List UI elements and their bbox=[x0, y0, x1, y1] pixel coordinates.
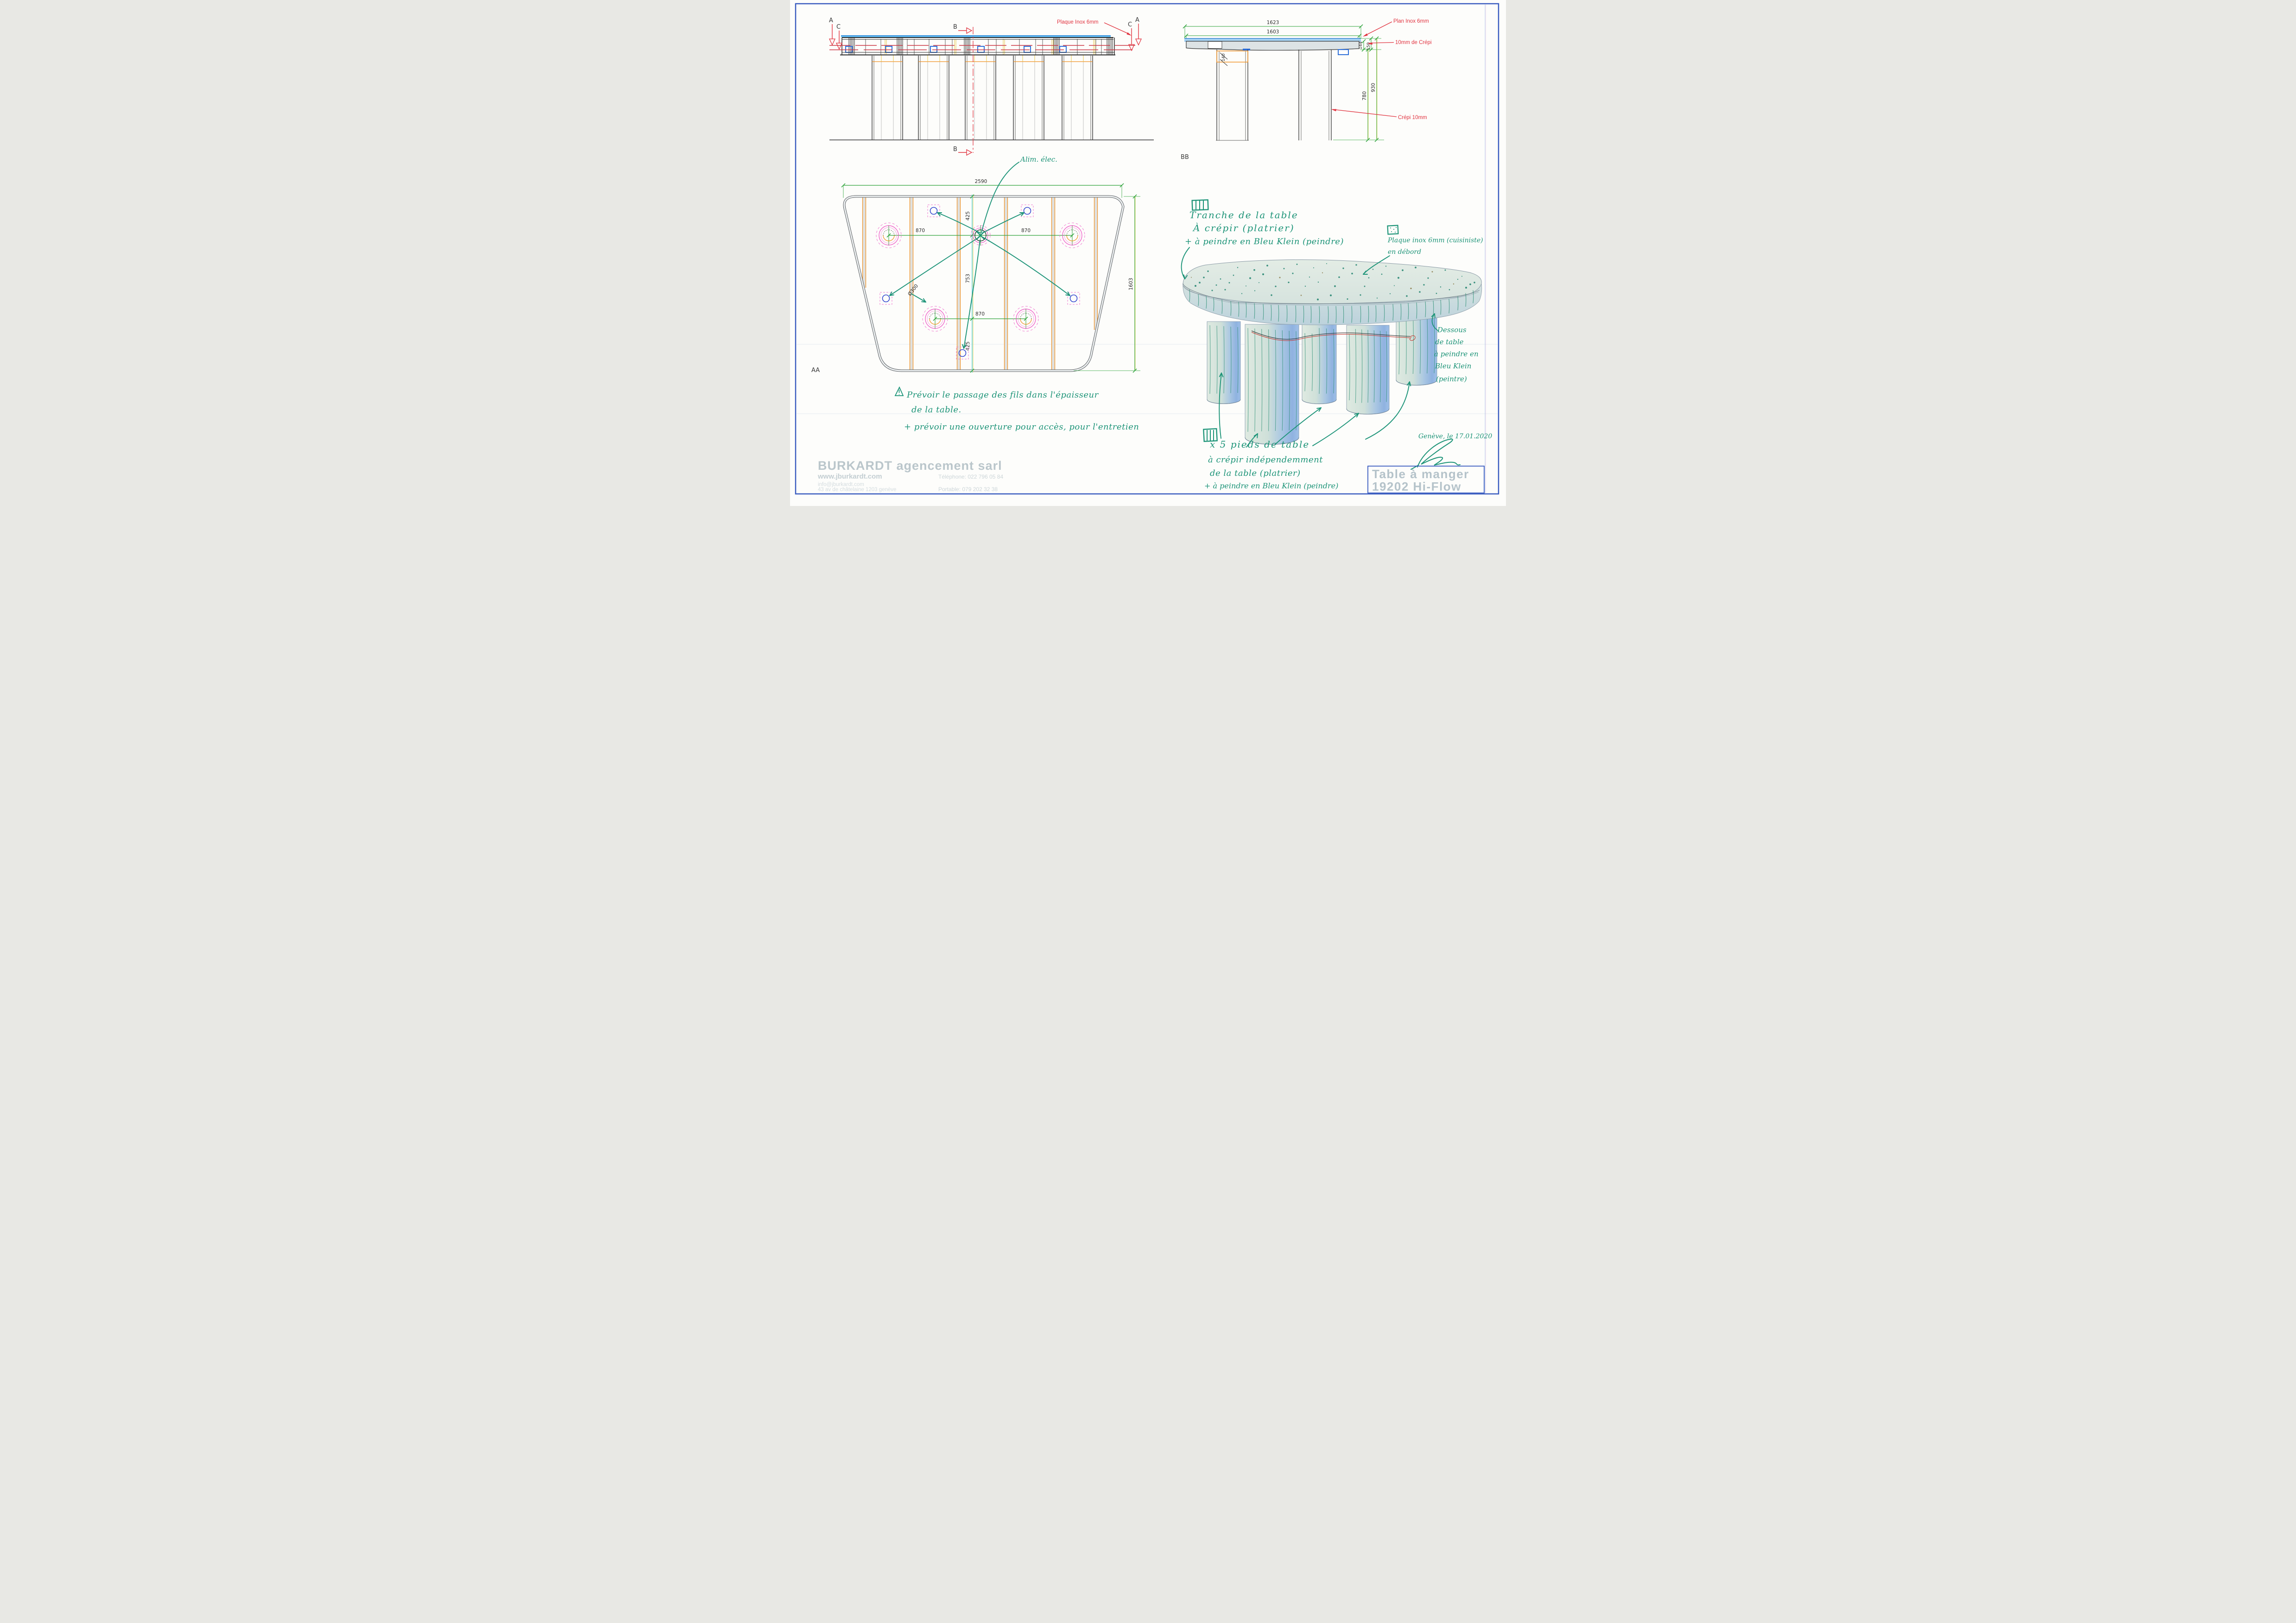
note-pieds-line1: x 5 pieds de table bbox=[1210, 439, 1309, 450]
dim-930: 930 bbox=[1371, 83, 1376, 92]
note-dessous-line3: à peindre en bbox=[1434, 350, 1479, 358]
warning-line1: Prévoir le passage des fils dans l'épais… bbox=[906, 390, 1099, 400]
note-pieds-line4: + à peindre en Bleu Klein (peindre) bbox=[1204, 481, 1338, 490]
section-markers-left: A C bbox=[829, 17, 842, 49]
note-dessous-line5: (peintre) bbox=[1436, 375, 1467, 383]
plaque-inox-leader bbox=[1104, 23, 1130, 34]
dim-425-top: 425 bbox=[965, 211, 971, 221]
note-pieds-line2: à crépir indépendemment bbox=[1208, 455, 1323, 465]
note-pieds-line3: de la table (platrier) bbox=[1210, 468, 1301, 478]
marker-a-left: A bbox=[829, 17, 833, 24]
plan-section-line-c bbox=[972, 195, 973, 373]
note-crepi-top: 10mm de Crépi bbox=[1395, 40, 1432, 45]
title-line1: Table à manger bbox=[1372, 467, 1469, 481]
dim-425-bottom: 425 bbox=[965, 341, 971, 351]
dim-870-right: 870 bbox=[1021, 228, 1031, 234]
note-tranche-line3: + à peindre en Bleu Klein (peindre) bbox=[1185, 237, 1344, 246]
note-dessous-line2: de table bbox=[1435, 338, 1464, 346]
section-bb-view: 1623 1603 140 bbox=[1181, 19, 1432, 161]
warning-line2: de la table. bbox=[911, 405, 961, 415]
bb-view-label: BB bbox=[1181, 154, 1189, 161]
bb-tabletop bbox=[1184, 38, 1361, 55]
company-name: BURKARDT agencement sarl bbox=[818, 459, 1002, 473]
dim-1623: 1623 bbox=[1267, 20, 1279, 25]
plan-battens bbox=[863, 196, 1098, 371]
dim-1603-plan: 1603 bbox=[1128, 278, 1134, 290]
signature bbox=[1411, 439, 1460, 469]
dim-753: 753 bbox=[965, 274, 971, 283]
marker-c-right: C bbox=[1128, 21, 1132, 28]
dim-140: 140 bbox=[1221, 53, 1226, 61]
speckle-symbol-icon bbox=[1388, 225, 1398, 234]
aa-view-label: AA bbox=[811, 367, 820, 374]
dim-2590: 2590 bbox=[975, 179, 987, 184]
note-dessous-line1: Dessous bbox=[1437, 326, 1467, 334]
bb-blue-clip-right bbox=[1338, 50, 1348, 55]
marker-c-left: C bbox=[836, 24, 841, 31]
dim-870-left: 870 bbox=[916, 228, 925, 234]
dim-1603-top: 1603 bbox=[1267, 29, 1279, 35]
warning-note: Prévoir le passage des fils dans l'épais… bbox=[895, 387, 1139, 432]
mobile: Portable: 079 202 32 38 bbox=[938, 486, 998, 493]
note-plaque-inox: Plaque Inox 6mm bbox=[1057, 19, 1099, 25]
dim-870-bottom: 870 bbox=[975, 311, 985, 317]
phone: Téléphone: 022 796 05 84 bbox=[938, 474, 1003, 480]
drawing-sheet: B B A C C A Plaque Inox 6mm bbox=[790, 0, 1506, 506]
note-plaque-line1: Plaque inox 6mm (cuisiniste) bbox=[1387, 237, 1483, 244]
warning-line3: + prévoir une ouverture pour accès, pour… bbox=[904, 422, 1139, 432]
dim-780: 780 bbox=[1362, 91, 1367, 101]
sketch-legs bbox=[1207, 307, 1437, 444]
website: www.jburkardt.com bbox=[817, 473, 882, 480]
marker-b-bottom: B bbox=[953, 146, 957, 153]
title-line2: 19202 Hi-Flow bbox=[1372, 480, 1461, 493]
footer: BURKARDT agencement sarl www.jburkardt.c… bbox=[817, 459, 1003, 493]
note-crepi-side: Crépi 10mm bbox=[1398, 115, 1427, 120]
elevation-view: B B A C C A Plaque Inox 6mm bbox=[829, 17, 1154, 155]
note-tranche-line2: À crépir (platrier) bbox=[1192, 222, 1295, 234]
title-block: Table à manger 19202 Hi-Flow bbox=[1368, 466, 1484, 493]
marker-a-right: A bbox=[1135, 17, 1139, 24]
note-plaque-line2: en débord bbox=[1388, 248, 1421, 256]
bb-legs bbox=[1216, 50, 1331, 140]
note-dessous-line4: Bleu Klein bbox=[1435, 362, 1471, 370]
sketch-table-top bbox=[1183, 260, 1481, 304]
bb-blue-clip-left bbox=[1243, 49, 1250, 51]
date-note: Genève, le 17.01.2020 bbox=[1418, 433, 1492, 440]
address: 43 av de châtelaine 1203 genève bbox=[818, 487, 896, 493]
note-alim-elec: Alim. élec. bbox=[1019, 155, 1057, 164]
note-tranche-line1: Tranche de la table bbox=[1189, 209, 1298, 221]
note-plan-inox: Plan Inox 6mm bbox=[1393, 19, 1429, 24]
marker-b-top: B bbox=[953, 24, 957, 31]
hatch-symbol-icon bbox=[1192, 200, 1208, 210]
warning-triangle-icon bbox=[895, 387, 903, 396]
